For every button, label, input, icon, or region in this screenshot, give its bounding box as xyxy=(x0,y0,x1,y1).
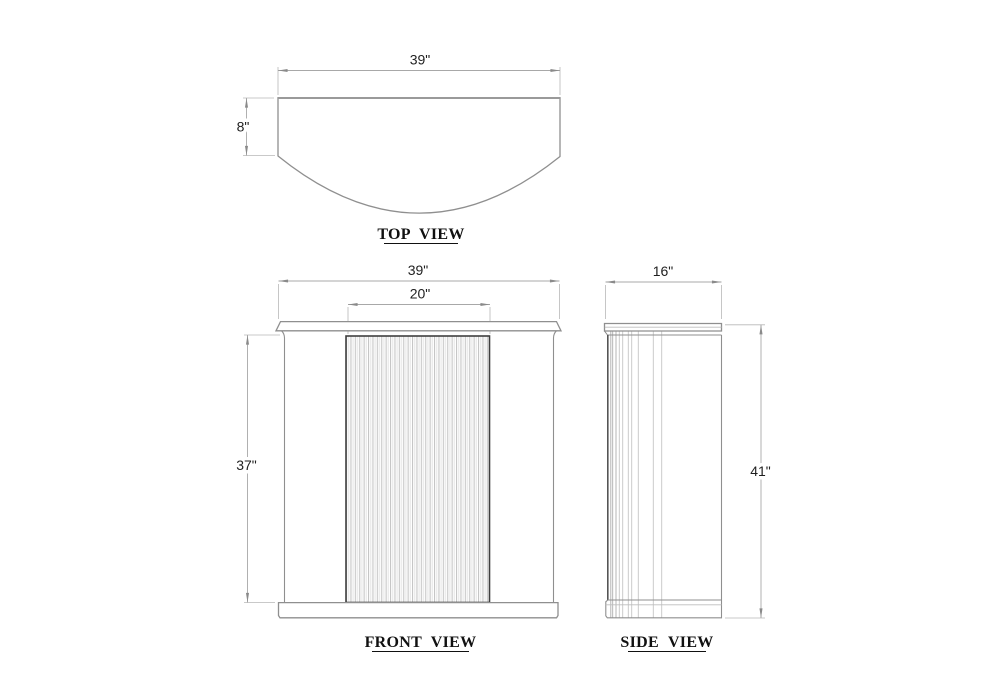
dimension-text: 8" xyxy=(237,119,250,135)
front-top-cap xyxy=(276,322,561,331)
front-base-plinth xyxy=(279,603,559,618)
drawing-canvas: 39" 8" TOP VIEW 39" 20" xyxy=(0,0,990,700)
dimension-text: 37" xyxy=(236,457,257,473)
technical-drawing-sheet: 39" 8" TOP VIEW 39" 20" xyxy=(0,0,990,700)
front-view: 39" 20" 37" FRONT VIEW xyxy=(236,262,561,652)
dimension-text: 41" xyxy=(750,463,771,479)
top-view-width-dimension: 39" xyxy=(278,52,560,96)
side-front-contours-far xyxy=(619,331,661,618)
top-view-depth-dimension: 8" xyxy=(237,98,275,156)
side-front-contours-near xyxy=(611,331,616,618)
front-body-right-side xyxy=(554,331,557,603)
extension-lines xyxy=(278,67,560,95)
fluted-door-panel xyxy=(346,336,490,603)
side-view-depth-dimension: 16" xyxy=(606,263,722,319)
top-view-label: TOP VIEW xyxy=(377,226,464,243)
front-view-height-dimension: 37" xyxy=(236,335,280,603)
dimension-text: 39" xyxy=(408,262,429,278)
dimension-text: 16" xyxy=(653,263,674,279)
side-view-label: SIDE VIEW xyxy=(620,634,713,651)
extension-lines xyxy=(606,285,722,319)
side-view-height-dimension: 41" xyxy=(725,325,771,618)
top-view: 39" 8" TOP VIEW xyxy=(237,52,561,244)
front-body-left-side xyxy=(282,331,285,603)
front-view-label: FRONT VIEW xyxy=(365,634,477,651)
side-base-plinth xyxy=(606,600,722,618)
top-view-outline xyxy=(278,98,560,213)
side-view: 16" 41" SIDE VIEW xyxy=(605,263,771,652)
dimension-text: 20" xyxy=(410,286,431,302)
dimension-text: 39" xyxy=(410,52,431,68)
